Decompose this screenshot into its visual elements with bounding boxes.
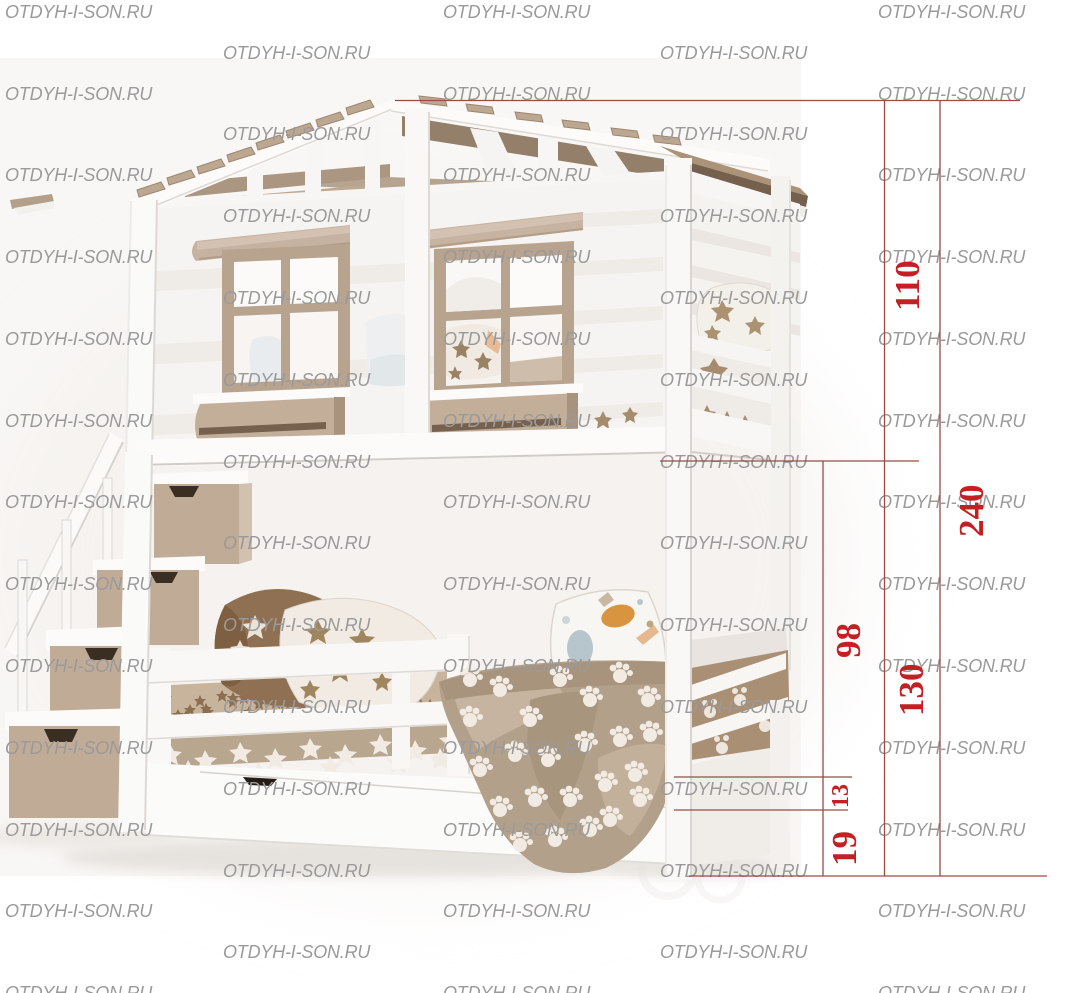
svg-text:OTDYH-I-SON.RU: OTDYH-I-SON.RU	[223, 43, 371, 63]
svg-text:OTDYH-I-SON.RU: OTDYH-I-SON.RU	[5, 820, 153, 840]
svg-text:OTDYH-I-SON.RU: OTDYH-I-SON.RU	[443, 983, 591, 993]
svg-text:OTDYH-I-SON.RU: OTDYH-I-SON.RU	[660, 452, 808, 472]
svg-text:OTDYH-I-SON.RU: OTDYH-I-SON.RU	[443, 247, 591, 267]
svg-text:OTDYH-I-SON.RU: OTDYH-I-SON.RU	[878, 738, 1026, 758]
svg-text:OTDYH-I-SON.RU: OTDYH-I-SON.RU	[660, 370, 808, 390]
svg-text:OTDYH-I-SON.RU: OTDYH-I-SON.RU	[223, 861, 371, 881]
svg-text:19: 19	[825, 831, 864, 866]
svg-text:OTDYH-I-SON.RU: OTDYH-I-SON.RU	[878, 901, 1026, 921]
svg-text:OTDYH-I-SON.RU: OTDYH-I-SON.RU	[443, 165, 591, 185]
svg-text:OTDYH-I-SON.RU: OTDYH-I-SON.RU	[660, 43, 808, 63]
svg-text:OTDYH-I-SON.RU: OTDYH-I-SON.RU	[443, 2, 591, 22]
svg-text:OTDYH-I-SON.RU: OTDYH-I-SON.RU	[443, 738, 591, 758]
svg-text:OTDYH-I-SON.RU: OTDYH-I-SON.RU	[443, 411, 591, 431]
svg-text:OTDYH-I-SON.RU: OTDYH-I-SON.RU	[443, 492, 591, 512]
svg-text:OTDYH-I-SON.RU: OTDYH-I-SON.RU	[660, 942, 808, 962]
svg-text:OTDYH-I-SON.RU: OTDYH-I-SON.RU	[660, 779, 808, 799]
svg-text:OTDYH-I-SON.RU: OTDYH-I-SON.RU	[5, 247, 153, 267]
svg-text:OTDYH-I-SON.RU: OTDYH-I-SON.RU	[5, 738, 153, 758]
svg-text:OTDYH-I-SON.RU: OTDYH-I-SON.RU	[223, 124, 371, 144]
svg-text:OTDYH-I-SON.RU: OTDYH-I-SON.RU	[223, 206, 371, 226]
svg-text:OTDYH-I-SON.RU: OTDYH-I-SON.RU	[223, 697, 371, 717]
svg-text:OTDYH-I-SON.RU: OTDYH-I-SON.RU	[223, 288, 371, 308]
svg-text:OTDYH-I-SON.RU: OTDYH-I-SON.RU	[5, 84, 153, 104]
svg-text:13: 13	[828, 784, 854, 808]
svg-text:110: 110	[888, 260, 927, 311]
svg-text:OTDYH-I-SON.RU: OTDYH-I-SON.RU	[223, 370, 371, 390]
svg-text:OTDYH-I-SON.RU: OTDYH-I-SON.RU	[878, 574, 1026, 594]
svg-text:130: 130	[892, 664, 931, 717]
svg-text:OTDYH-I-SON.RU: OTDYH-I-SON.RU	[878, 329, 1026, 349]
svg-text:OTDYH-I-SON.RU: OTDYH-I-SON.RU	[443, 574, 591, 594]
svg-text:OTDYH-I-SON.RU: OTDYH-I-SON.RU	[5, 656, 153, 676]
svg-text:OTDYH-I-SON.RU: OTDYH-I-SON.RU	[660, 615, 808, 635]
svg-text:OTDYH-I-SON.RU: OTDYH-I-SON.RU	[660, 206, 808, 226]
svg-text:OTDYH-I-SON.RU: OTDYH-I-SON.RU	[443, 820, 591, 840]
svg-text:OTDYH-I-SON.RU: OTDYH-I-SON.RU	[223, 779, 371, 799]
svg-text:OTDYH-I-SON.RU: OTDYH-I-SON.RU	[878, 820, 1026, 840]
svg-text:OTDYH-I-SON.RU: OTDYH-I-SON.RU	[223, 615, 371, 635]
svg-text:OTDYH-I-SON.RU: OTDYH-I-SON.RU	[5, 983, 153, 993]
svg-text:OTDYH-I-SON.RU: OTDYH-I-SON.RU	[660, 697, 808, 717]
svg-text:OTDYH-I-SON.RU: OTDYH-I-SON.RU	[660, 124, 808, 144]
svg-text:OTDYH-I-SON.RU: OTDYH-I-SON.RU	[223, 452, 371, 472]
svg-text:OTDYH-I-SON.RU: OTDYH-I-SON.RU	[5, 2, 153, 22]
svg-text:OTDYH-I-SON.RU: OTDYH-I-SON.RU	[660, 533, 808, 553]
svg-text:OTDYH-I-SON.RU: OTDYH-I-SON.RU	[660, 861, 808, 881]
svg-text:OTDYH-I-SON.RU: OTDYH-I-SON.RU	[443, 329, 591, 349]
svg-text:OTDYH-I-SON.RU: OTDYH-I-SON.RU	[443, 656, 591, 676]
svg-text:OTDYH-I-SON.RU: OTDYH-I-SON.RU	[5, 411, 153, 431]
svg-text:OTDYH-I-SON.RU: OTDYH-I-SON.RU	[878, 411, 1026, 431]
svg-text:OTDYH-I-SON.RU: OTDYH-I-SON.RU	[660, 288, 808, 308]
svg-text:98: 98	[829, 623, 868, 658]
svg-text:OTDYH-I-SON.RU: OTDYH-I-SON.RU	[5, 329, 153, 349]
svg-text:OTDYH-I-SON.RU: OTDYH-I-SON.RU	[5, 492, 153, 512]
svg-text:OTDYH-I-SON.RU: OTDYH-I-SON.RU	[223, 533, 371, 553]
svg-text:OTDYH-I-SON.RU: OTDYH-I-SON.RU	[878, 165, 1026, 185]
svg-text:OTDYH-I-SON.RU: OTDYH-I-SON.RU	[223, 942, 371, 962]
svg-text:OTDYH-I-SON.RU: OTDYH-I-SON.RU	[878, 2, 1026, 22]
svg-text:OTDYH-I-SON.RU: OTDYH-I-SON.RU	[5, 901, 153, 921]
svg-text:OTDYH-I-SON.RU: OTDYH-I-SON.RU	[878, 983, 1026, 993]
svg-text:OTDYH-I-SON.RU: OTDYH-I-SON.RU	[5, 574, 153, 594]
svg-text:OTDYH-I-SON.RU: OTDYH-I-SON.RU	[443, 901, 591, 921]
svg-text:OTDYH-I-SON.RU: OTDYH-I-SON.RU	[5, 165, 153, 185]
svg-text:240: 240	[952, 485, 991, 538]
